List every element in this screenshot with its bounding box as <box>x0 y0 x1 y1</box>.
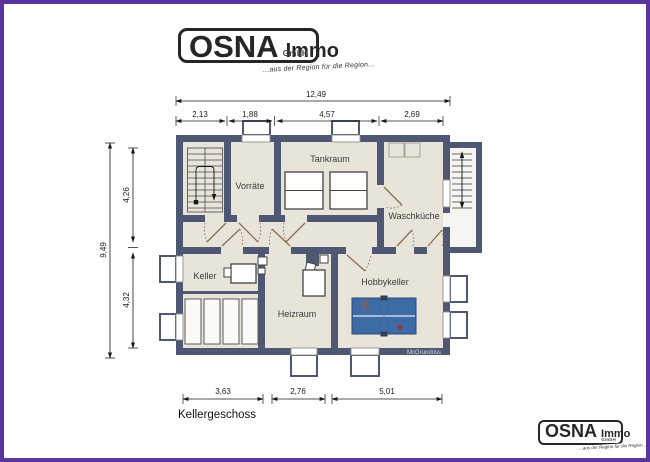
dim-left-total: 9,49 <box>99 242 108 258</box>
room-label-tankraum: Tankraum <box>310 154 350 164</box>
logo-footer: OSNA Immo GmbH ...aus der Region für die… <box>536 417 644 459</box>
storage-compartment <box>185 299 201 344</box>
watermark: McGrundriss <box>407 350 441 356</box>
dim-bottom-seg-2: 2,76 <box>290 387 306 396</box>
wall-segment <box>360 135 450 142</box>
wall-duct <box>258 268 265 274</box>
logo-box: OSNA Immo GmbH <box>538 420 623 445</box>
dim-bottom-seg-1: 3,63 <box>215 387 231 396</box>
wall-segment <box>450 142 482 148</box>
dim-top-seg-3: 4,57 <box>319 110 335 119</box>
window-well <box>450 276 467 302</box>
logo-header: OSNA Immo GmbH ...aus der Region für die… <box>173 22 383 82</box>
wall-segment <box>331 254 338 348</box>
window-pane <box>443 312 450 338</box>
dim-left-seg-1: 4,26 <box>122 187 131 203</box>
wall-segment <box>414 247 427 254</box>
logo-brand: OSNA <box>189 32 279 61</box>
dim-top-seg-1: 2,13 <box>192 110 208 119</box>
wall-segment <box>183 291 258 294</box>
wall-segment <box>443 227 450 276</box>
logo-box: OSNA Immo GmbH <box>178 28 319 63</box>
window-pane <box>291 348 317 355</box>
window-pane <box>443 180 450 207</box>
keller-equipment-stub <box>224 268 231 277</box>
wall-segment <box>291 247 346 254</box>
dim-left-seg-2: 4,32 <box>122 292 131 308</box>
keller-equipment-body <box>231 264 256 283</box>
wall-segment <box>443 302 450 312</box>
wall-segment <box>243 247 269 254</box>
window-pane <box>176 314 183 340</box>
window-well <box>351 355 379 376</box>
wall-segment <box>183 215 205 222</box>
wall-duct <box>258 257 267 265</box>
wall-segment <box>377 142 384 185</box>
wall-segment <box>443 207 450 213</box>
dim-top-seg-4: 2,69 <box>404 110 420 119</box>
logo-company-form: GmbH <box>601 437 616 442</box>
wall-segment <box>227 215 237 222</box>
dim-top-seg-2: 1,88 <box>242 110 258 119</box>
window-well <box>332 121 359 135</box>
wall-segment <box>450 247 476 253</box>
dim-top-total: 12,49 <box>306 90 327 99</box>
wall-segment <box>176 348 291 355</box>
wall-segment <box>176 282 183 314</box>
window-pane <box>351 348 379 355</box>
wall-segment <box>176 135 242 142</box>
wall-segment <box>176 135 183 256</box>
exterior-stairwell-floor <box>450 148 476 247</box>
wall-segment <box>317 348 351 355</box>
wall-segment <box>476 148 482 253</box>
wall-segment <box>270 135 332 142</box>
window-pane <box>443 276 450 302</box>
wall-segment <box>307 215 377 222</box>
wall-segment <box>274 142 281 222</box>
window-pane <box>332 135 360 142</box>
boiler <box>303 270 325 296</box>
wall-segment <box>183 247 221 254</box>
floor-label: Kellergeschoss <box>178 409 256 421</box>
exterior-door-opening <box>443 213 450 227</box>
window-well <box>450 312 467 338</box>
window-pane <box>242 135 270 142</box>
window-well <box>160 256 176 282</box>
window-pane <box>176 256 183 282</box>
wall-segment <box>224 142 231 222</box>
table-tennis-table <box>352 296 416 337</box>
wall-segment <box>372 247 396 254</box>
wall-segment <box>259 215 285 222</box>
washing-machine <box>389 143 404 157</box>
chimney-cleanout <box>320 255 328 263</box>
stair-direction-start <box>194 200 198 204</box>
window-well <box>291 355 317 376</box>
room-label-hobbykeller: Hobbykeller <box>361 277 409 287</box>
wall-segment <box>443 338 450 355</box>
net-post <box>381 332 388 337</box>
logo-brand: OSNA <box>545 422 597 441</box>
ball <box>398 325 403 330</box>
storage-compartment <box>223 299 239 344</box>
window-well <box>243 121 270 135</box>
storage-compartment <box>242 299 258 344</box>
room-label-vorraete: Vorräte <box>235 181 264 191</box>
net-post <box>381 296 388 301</box>
page-canvas: OSNA Immo GmbH ...aus der Region für die… <box>0 0 650 462</box>
wall-segment <box>443 135 450 180</box>
room-label-waschkueche: Waschküche <box>388 211 439 221</box>
room-label-keller: Keller <box>193 271 216 281</box>
logo-company-form: GmbH <box>283 49 308 58</box>
storage-compartment <box>204 299 220 344</box>
window-well <box>160 314 176 340</box>
dim-bottom-seg-3: 5,01 <box>379 387 395 396</box>
room-label-heizraum: Heizraum <box>278 309 317 319</box>
washing-machine <box>405 143 420 157</box>
